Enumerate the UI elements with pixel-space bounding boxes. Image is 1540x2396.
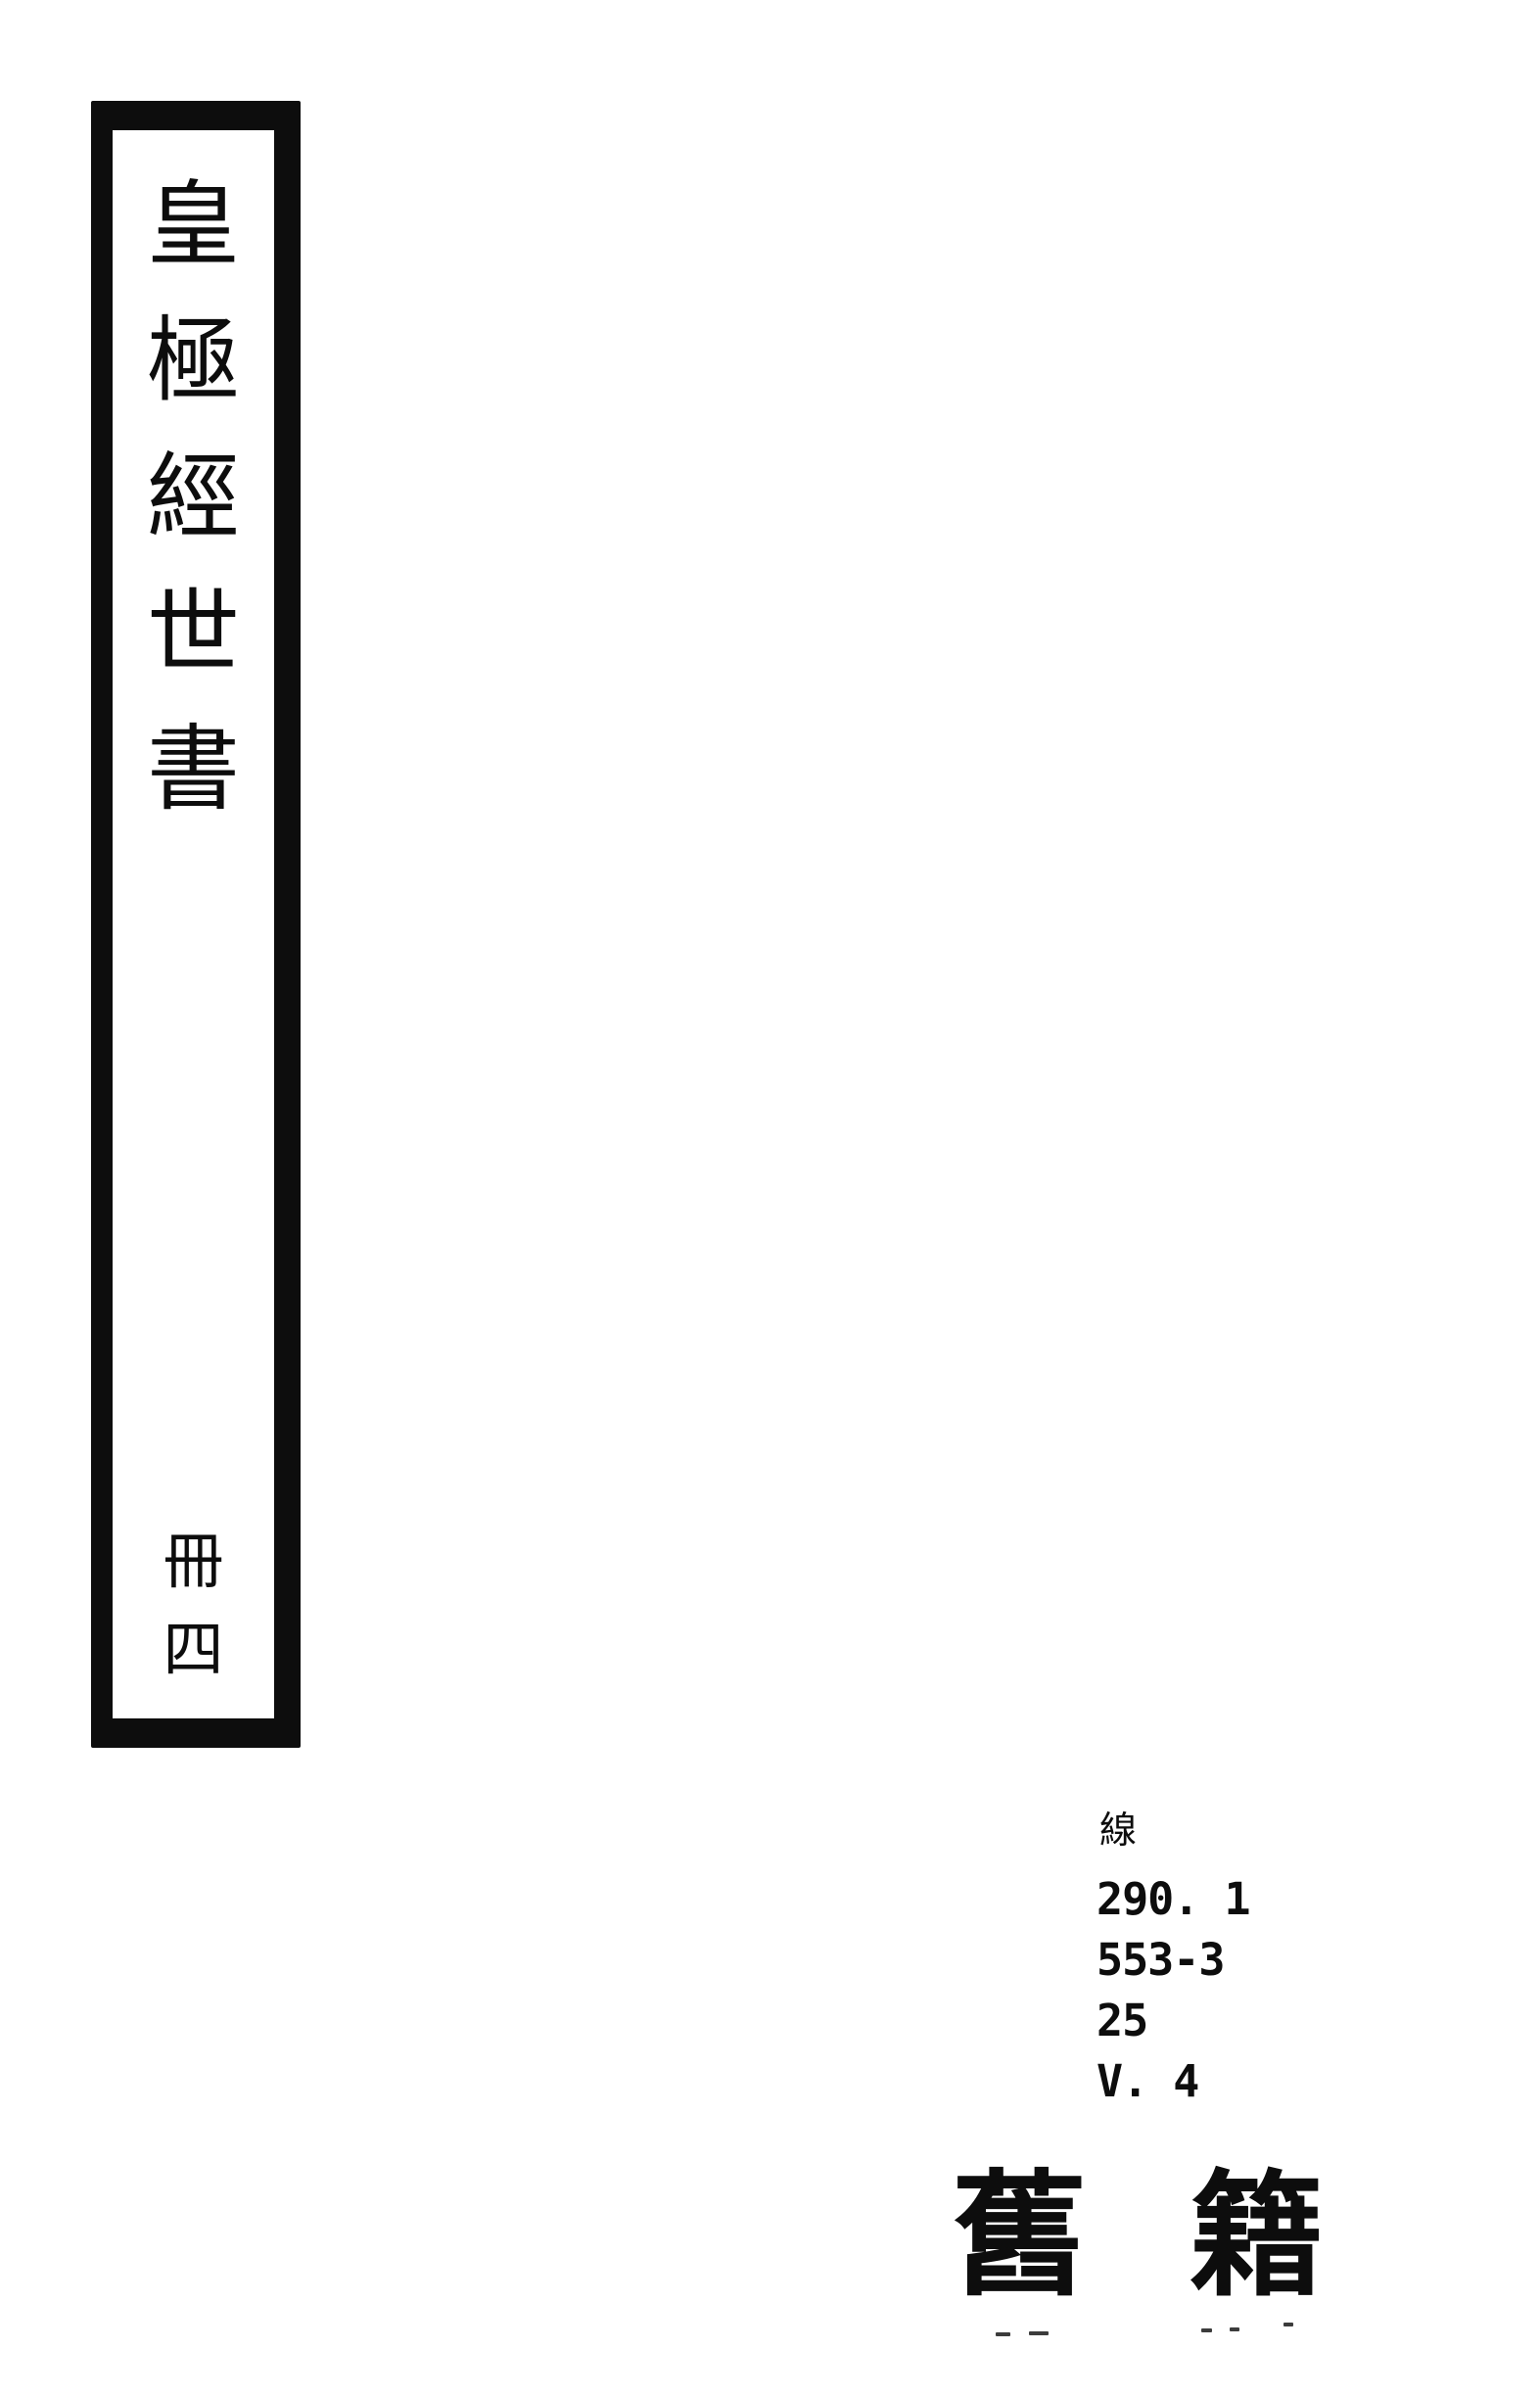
title-char-3: 經 xyxy=(147,451,240,544)
book-title-vertical: 皇 極 經 世 書 xyxy=(113,179,274,817)
category-char-ji: 籍 xyxy=(1190,2166,1325,2308)
category-char-old: 舊 xyxy=(952,2166,1087,2308)
volume-char-1: 冊 xyxy=(163,1530,223,1595)
call-number-line-2: 553-3 xyxy=(1097,1930,1250,1991)
print-artifact-dash xyxy=(1230,2327,1239,2331)
title-char-1: 皇 xyxy=(147,179,240,272)
print-artifact-dash xyxy=(1201,2328,1212,2332)
print-artifact-dash xyxy=(996,2332,1010,2336)
call-number-line-1: 290. 1 xyxy=(1097,1869,1250,1930)
title-char-4: 世 xyxy=(147,587,240,681)
call-number-line-4: V. 4 xyxy=(1097,2051,1250,2112)
binding-type-label: 線 xyxy=(1099,1812,1250,1850)
print-artifact-dash xyxy=(1029,2331,1049,2335)
call-number-block: 線 290. 1 553-3 25 V. 4 xyxy=(1097,1812,1250,2112)
title-char-5: 書 xyxy=(147,724,240,817)
volume-char-2: 四 xyxy=(163,1619,223,1683)
scanned-book-spine-page: 皇 極 經 世 書 冊 四 線 290. 1 553-3 25 V. 4 舊 籍 xyxy=(0,0,1540,2396)
volume-label-vertical: 冊 四 xyxy=(113,1530,274,1683)
spine-label-frame: 皇 極 經 世 書 冊 四 xyxy=(91,101,301,1748)
title-char-2: 極 xyxy=(147,315,240,408)
print-artifact-dash xyxy=(1283,2323,1293,2326)
call-number-line-3: 25 xyxy=(1097,1991,1250,2051)
